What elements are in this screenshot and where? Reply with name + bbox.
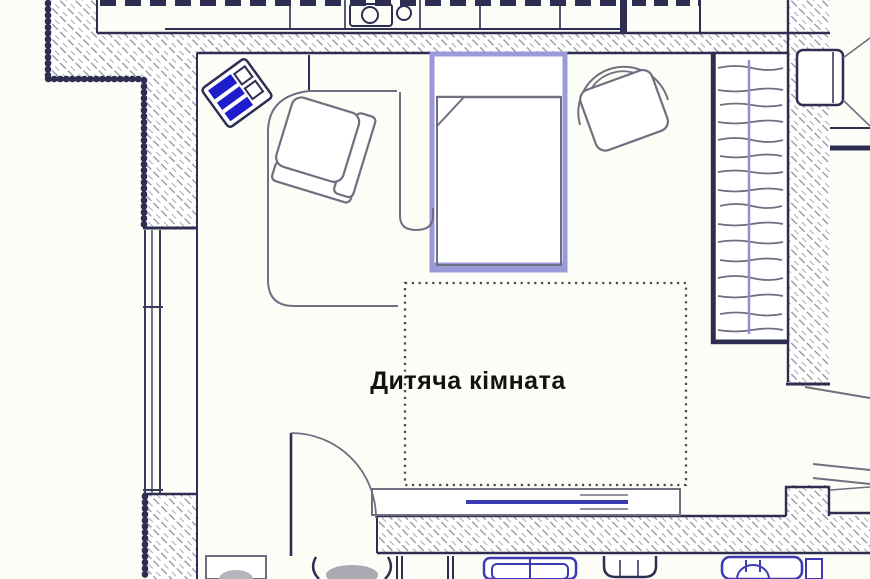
desk-chair bbox=[201, 58, 273, 129]
floor-plan-canvas: Дитяча кімната bbox=[0, 0, 870, 579]
bed bbox=[432, 54, 565, 270]
kitchen-wall-stub bbox=[620, 0, 627, 33]
bathroom-fixtures bbox=[206, 556, 822, 579]
soft-chair bbox=[269, 93, 377, 204]
shaft-box bbox=[797, 50, 843, 105]
faucet-icon bbox=[397, 6, 411, 20]
door bbox=[291, 433, 376, 556]
hall-door-leaf bbox=[805, 387, 870, 398]
desk-return bbox=[400, 92, 433, 230]
round-armchair bbox=[577, 67, 670, 154]
door-swing-arc bbox=[291, 433, 376, 518]
low-cabinet bbox=[372, 489, 680, 515]
window bbox=[143, 230, 163, 494]
floor-plan: Дитяча кімната bbox=[0, 0, 870, 579]
sink-bowl-icon bbox=[326, 565, 378, 579]
room-label: Дитяча кімната bbox=[370, 367, 566, 395]
kitchen-strip bbox=[100, 0, 700, 33]
wardrobe bbox=[712, 53, 788, 343]
